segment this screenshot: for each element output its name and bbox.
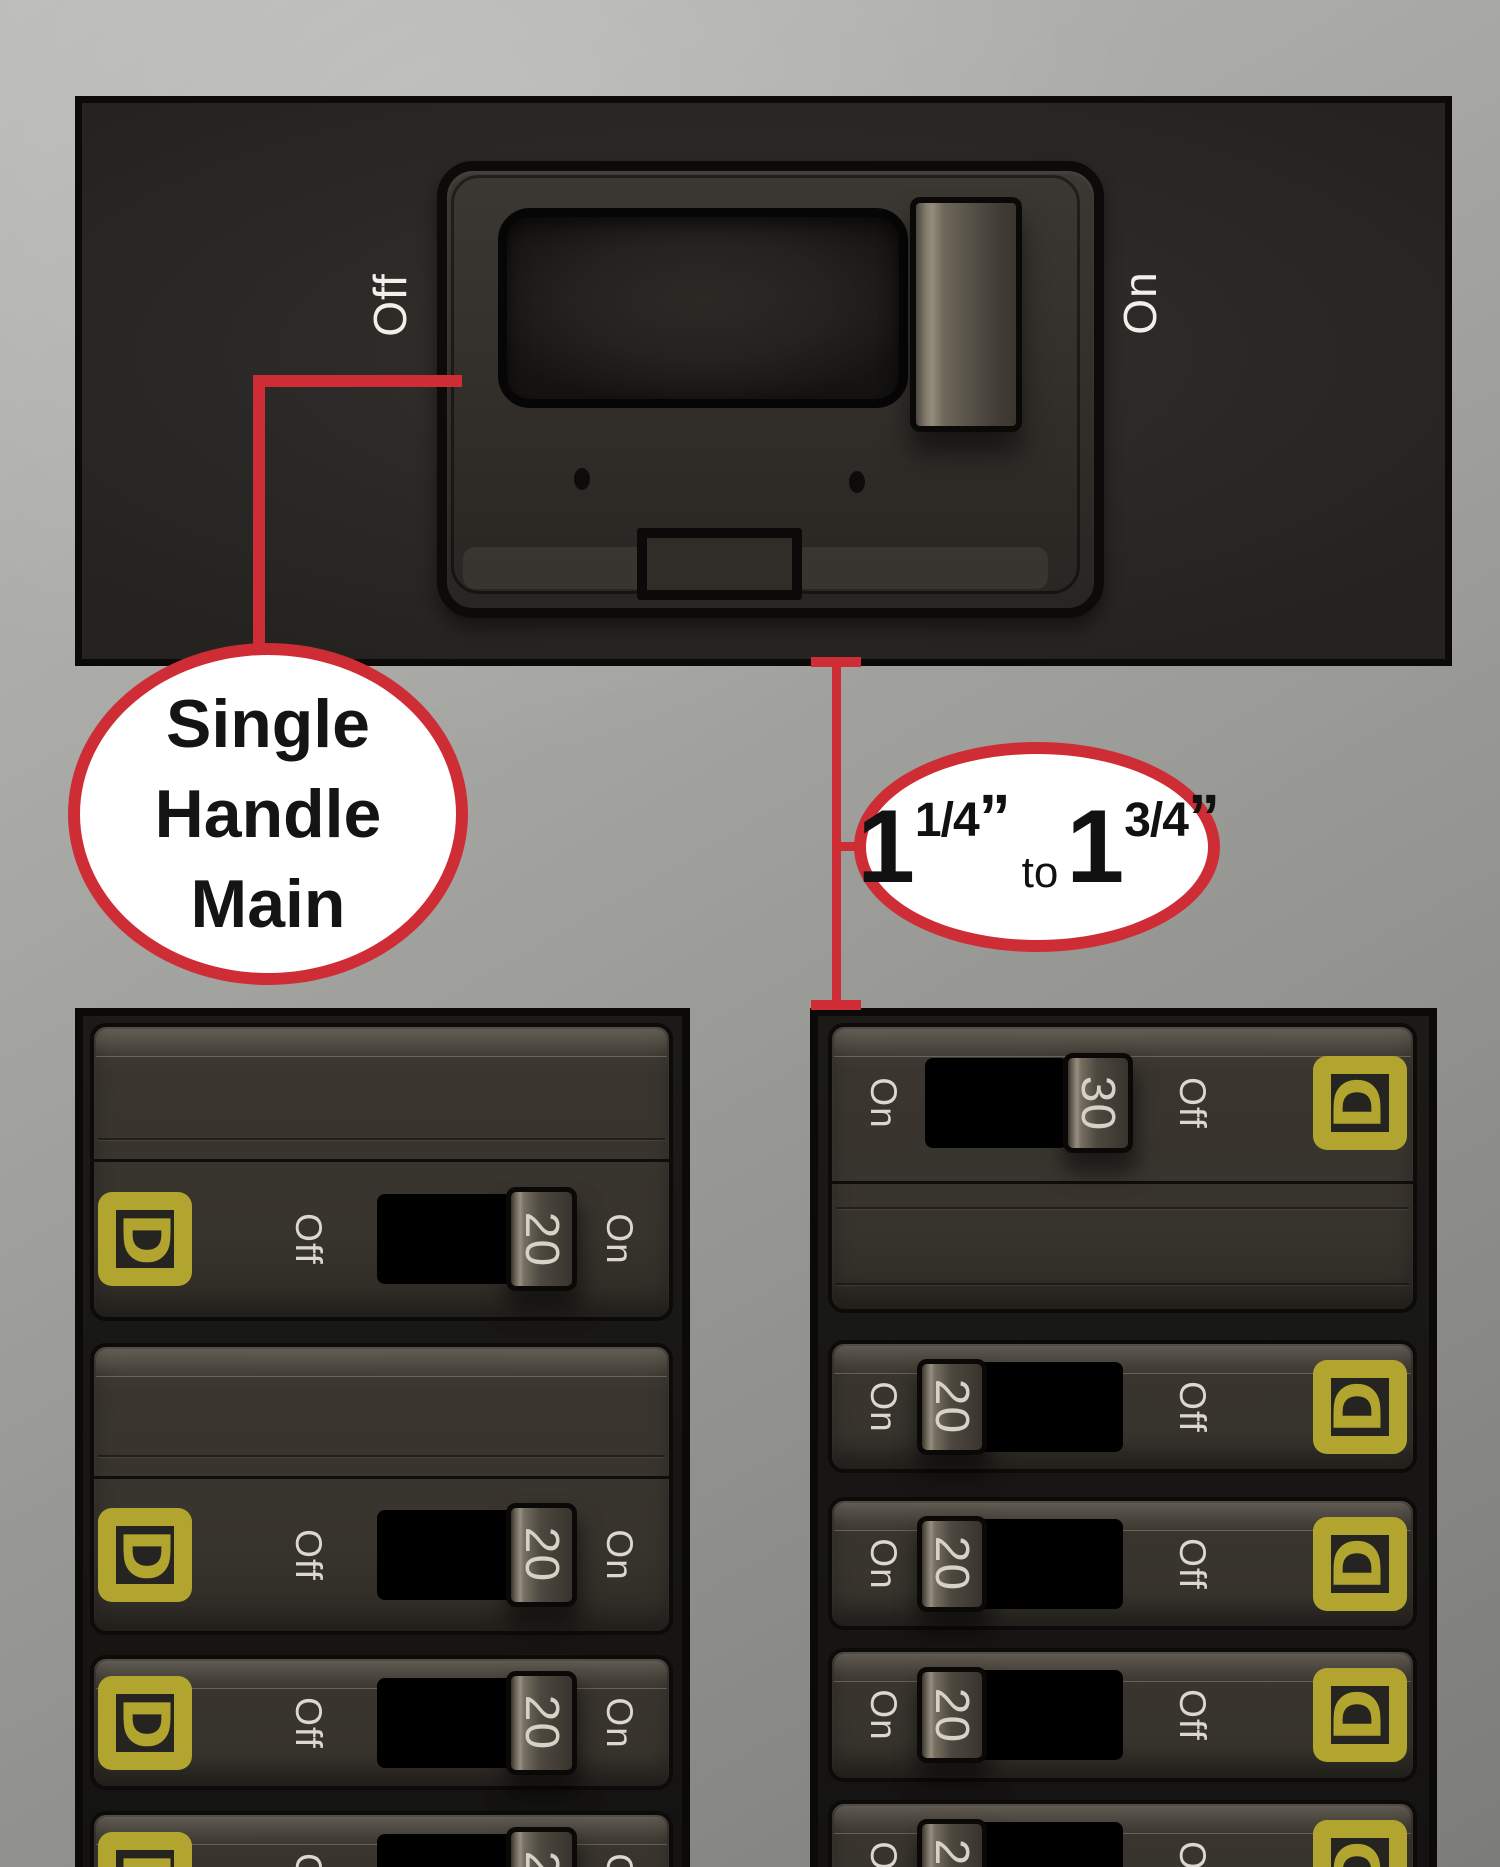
single-handle-main-text: Single Handle Main xyxy=(155,679,382,949)
square-d-logo: D xyxy=(1313,1517,1407,1611)
square-d-logo: D xyxy=(98,1192,192,1286)
inch-mark: ” xyxy=(979,785,1008,849)
measurement-text: 1 1/4 ” to 1 3/4 ” xyxy=(857,795,1217,899)
on-label: On xyxy=(598,1853,640,1867)
module-clip-tab xyxy=(637,528,802,600)
on-label: On xyxy=(862,1689,904,1740)
main-breaker-slot xyxy=(498,208,908,408)
breaker-row: DOff20On xyxy=(94,1478,669,1631)
amp-rating-label: 20 xyxy=(514,1211,569,1266)
main-callout-line-horizontal xyxy=(253,375,462,387)
breaker-handle[interactable]: 20 xyxy=(917,1359,987,1455)
square-d-logo: D xyxy=(98,1508,192,1602)
on-label: On xyxy=(862,1077,904,1128)
unit-sheen xyxy=(96,1349,667,1377)
breaker-row: On20OffD xyxy=(832,1344,1413,1469)
amp-rating-label: 20 xyxy=(514,1695,569,1750)
breaker-unit: On20OffD xyxy=(828,1340,1417,1473)
on-label: On xyxy=(598,1529,640,1580)
measurement-callout: 1 1/4 ” to 1 3/4 ” xyxy=(854,742,1220,952)
breaker-handle[interactable]: 20 xyxy=(917,1819,987,1867)
measure-first-whole: 1 xyxy=(857,795,915,899)
breaker-slot xyxy=(968,1519,1123,1609)
main-breaker-handle[interactable] xyxy=(910,197,1022,432)
left-breaker-panel: DOff20OnDOff20OnDOff20OnDOff20On xyxy=(75,1008,690,1867)
off-label: Off xyxy=(287,1213,329,1265)
off-label: Off xyxy=(287,1853,329,1867)
breaker-slot xyxy=(925,1058,1068,1148)
breaker-unit: On20OffD xyxy=(828,1648,1417,1782)
breaker-row: DOff20On xyxy=(94,1659,669,1786)
measure-first-fraction: 1/4 xyxy=(915,797,979,845)
molding-seam xyxy=(836,1207,1409,1209)
measure-line-bottom-cap xyxy=(811,1000,861,1010)
breaker-handle[interactable]: 30 xyxy=(1063,1053,1133,1153)
breaker-handle[interactable]: 20 xyxy=(917,1516,987,1612)
square-d-letter: D xyxy=(113,1696,177,1749)
off-label: Off xyxy=(1171,1538,1213,1590)
square-d-letter: D xyxy=(113,1212,177,1265)
square-d-logo: D xyxy=(1313,1820,1407,1867)
on-label: On xyxy=(598,1213,640,1264)
square-d-letter: D xyxy=(1328,1840,1392,1867)
square-d-logo: D xyxy=(1313,1668,1407,1762)
breaker-slot xyxy=(968,1822,1123,1867)
single-handle-main-callout: Single Handle Main xyxy=(68,643,468,985)
square-d-letter: D xyxy=(113,1852,177,1867)
amp-rating-label: 20 xyxy=(924,1687,979,1742)
square-d-letter: D xyxy=(1328,1688,1392,1741)
breaker-row: On30OffD xyxy=(832,1027,1413,1179)
main-on-label: On xyxy=(1113,271,1167,334)
unit-sheen xyxy=(96,1029,667,1057)
amp-rating-label: 20 xyxy=(514,1851,569,1867)
square-d-logo: D xyxy=(98,1832,192,1867)
inch-mark: ” xyxy=(1188,785,1217,849)
square-d-letter: D xyxy=(113,1528,177,1581)
molding-seam xyxy=(98,1455,665,1457)
amp-rating-label: 20 xyxy=(924,1379,979,1434)
measure-line-vertical xyxy=(832,659,841,1010)
off-label: Off xyxy=(1171,1841,1213,1867)
square-d-logo: D xyxy=(98,1676,192,1770)
breaker-handle[interactable]: 20 xyxy=(506,1671,577,1775)
left-panel-field: DOff20OnDOff20OnDOff20OnDOff20On xyxy=(83,1016,682,1867)
breaker-handle[interactable]: 20 xyxy=(506,1827,577,1867)
square-d-letter: D xyxy=(1328,1537,1392,1590)
amp-rating-label: 30 xyxy=(1070,1075,1125,1130)
breaker-unit: DOff20On xyxy=(90,1343,673,1635)
main-callout-line-vertical xyxy=(253,381,265,647)
breaker-handle[interactable]: 20 xyxy=(917,1667,987,1763)
main-breaker-module xyxy=(437,161,1104,618)
screw-dot xyxy=(849,471,865,493)
measure-connector-word: to xyxy=(1022,851,1059,895)
screw-dot xyxy=(574,468,590,490)
unit-divider xyxy=(828,1181,1417,1184)
main-off-label: Off xyxy=(363,273,417,337)
off-label: Off xyxy=(1171,1689,1213,1741)
molding-seam xyxy=(98,1138,665,1140)
square-d-logo: D xyxy=(1313,1360,1407,1454)
amp-rating-label: 20 xyxy=(924,1839,979,1867)
measure-second-fraction: 3/4 xyxy=(1124,797,1188,845)
breaker-unit: On20OffD xyxy=(828,1497,1417,1630)
off-label: Off xyxy=(1171,1077,1213,1129)
breaker-handle[interactable]: 20 xyxy=(506,1187,577,1291)
on-label: On xyxy=(862,1538,904,1589)
breaker-panel-infographic: Off On DOff20OnDOff20OnDOff20OnDOff20On … xyxy=(0,0,1500,1867)
right-breaker-panel: On30OffDOn20OffDOn20OffDOn20OffDOn20OffD xyxy=(810,1008,1437,1867)
breaker-row: On20OffD xyxy=(832,1804,1413,1867)
breaker-unit: DOff20On xyxy=(90,1023,673,1321)
square-d-letter: D xyxy=(1328,1380,1392,1433)
molding-seam xyxy=(836,1283,1409,1285)
square-d-letter: D xyxy=(1328,1076,1392,1129)
breaker-unit: DOff20On xyxy=(90,1811,673,1867)
on-label: On xyxy=(862,1841,904,1867)
measure-line-top-cap xyxy=(811,657,861,667)
on-label: On xyxy=(598,1697,640,1748)
breaker-handle[interactable]: 20 xyxy=(506,1503,577,1607)
measure-second-whole: 1 xyxy=(1066,795,1124,899)
amp-rating-label: 20 xyxy=(514,1527,569,1582)
breaker-row: DOff20On xyxy=(94,1815,669,1867)
off-label: Off xyxy=(287,1529,329,1581)
off-label: Off xyxy=(1171,1381,1213,1433)
breaker-row: On20OffD xyxy=(832,1652,1413,1778)
breaker-row: DOff20On xyxy=(94,1161,669,1317)
amp-rating-label: 20 xyxy=(924,1536,979,1591)
breaker-slot xyxy=(968,1362,1123,1452)
on-label: On xyxy=(862,1381,904,1432)
off-label: Off xyxy=(287,1697,329,1749)
breaker-unit: On30OffD xyxy=(828,1023,1417,1313)
breaker-unit: DOff20On xyxy=(90,1655,673,1790)
breaker-slot xyxy=(968,1670,1123,1760)
breaker-row: On20OffD xyxy=(832,1501,1413,1626)
square-d-logo: D xyxy=(1313,1056,1407,1150)
right-panel-field: On30OffDOn20OffDOn20OffDOn20OffDOn20OffD xyxy=(818,1016,1429,1867)
breaker-unit: On20OffD xyxy=(828,1800,1417,1867)
